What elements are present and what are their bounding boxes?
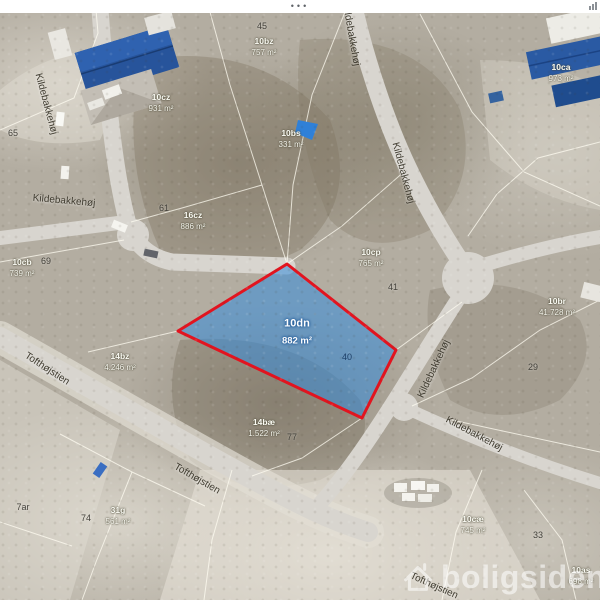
parcel-label: 10br41.728 m² (539, 295, 575, 319)
parcel-label: 10cp765 m² (359, 246, 384, 270)
parcel-label: 10cz931 m² (149, 91, 174, 115)
plot-number: 33 (533, 530, 543, 540)
plot-number: 45 (257, 21, 267, 31)
parcel-label: 10bz757 m² (252, 35, 277, 59)
plot-number: 7ar (16, 502, 29, 512)
plot-number: 61 (159, 203, 169, 213)
status-bar: ••• (0, 0, 600, 13)
app-window: ••• (0, 0, 600, 600)
parcel-label: 10cæ745 m² (461, 513, 486, 537)
plot-number: 74 (81, 513, 91, 523)
highlighted-parcel-label: 10dn 882 m² (282, 316, 312, 349)
parcel-label: 31g561 m² (106, 504, 131, 528)
plot-number: 69 (41, 256, 51, 266)
menu-dots-icon[interactable]: ••• (291, 2, 309, 11)
plot-number: 77 (287, 432, 297, 442)
signal-icon (589, 2, 597, 10)
parcel-label: 10as698 m² (569, 564, 594, 588)
parcel-label: 14bæ1.522 m² (248, 416, 280, 440)
plot-number: 65 (8, 128, 18, 138)
parcel-label: 14bz4.246 m² (104, 350, 136, 374)
plot-number: 41 (388, 282, 398, 292)
parcel-label: 10ca973 m² (549, 61, 574, 85)
pallet-stacks (384, 478, 452, 508)
aerial-map[interactable]: 10bz757 m² 10ca973 m² 10cz931 m² 10bs331… (0, 13, 600, 600)
plot-number: 29 (528, 362, 538, 372)
parcel-label: 10bs331 m² (279, 127, 304, 151)
parcel-label: 10cb739 m² (10, 256, 35, 280)
aerial-map-svg (0, 13, 600, 600)
plot-number: 40 (342, 352, 352, 362)
parcel-label: 16cz886 m² (181, 209, 206, 233)
